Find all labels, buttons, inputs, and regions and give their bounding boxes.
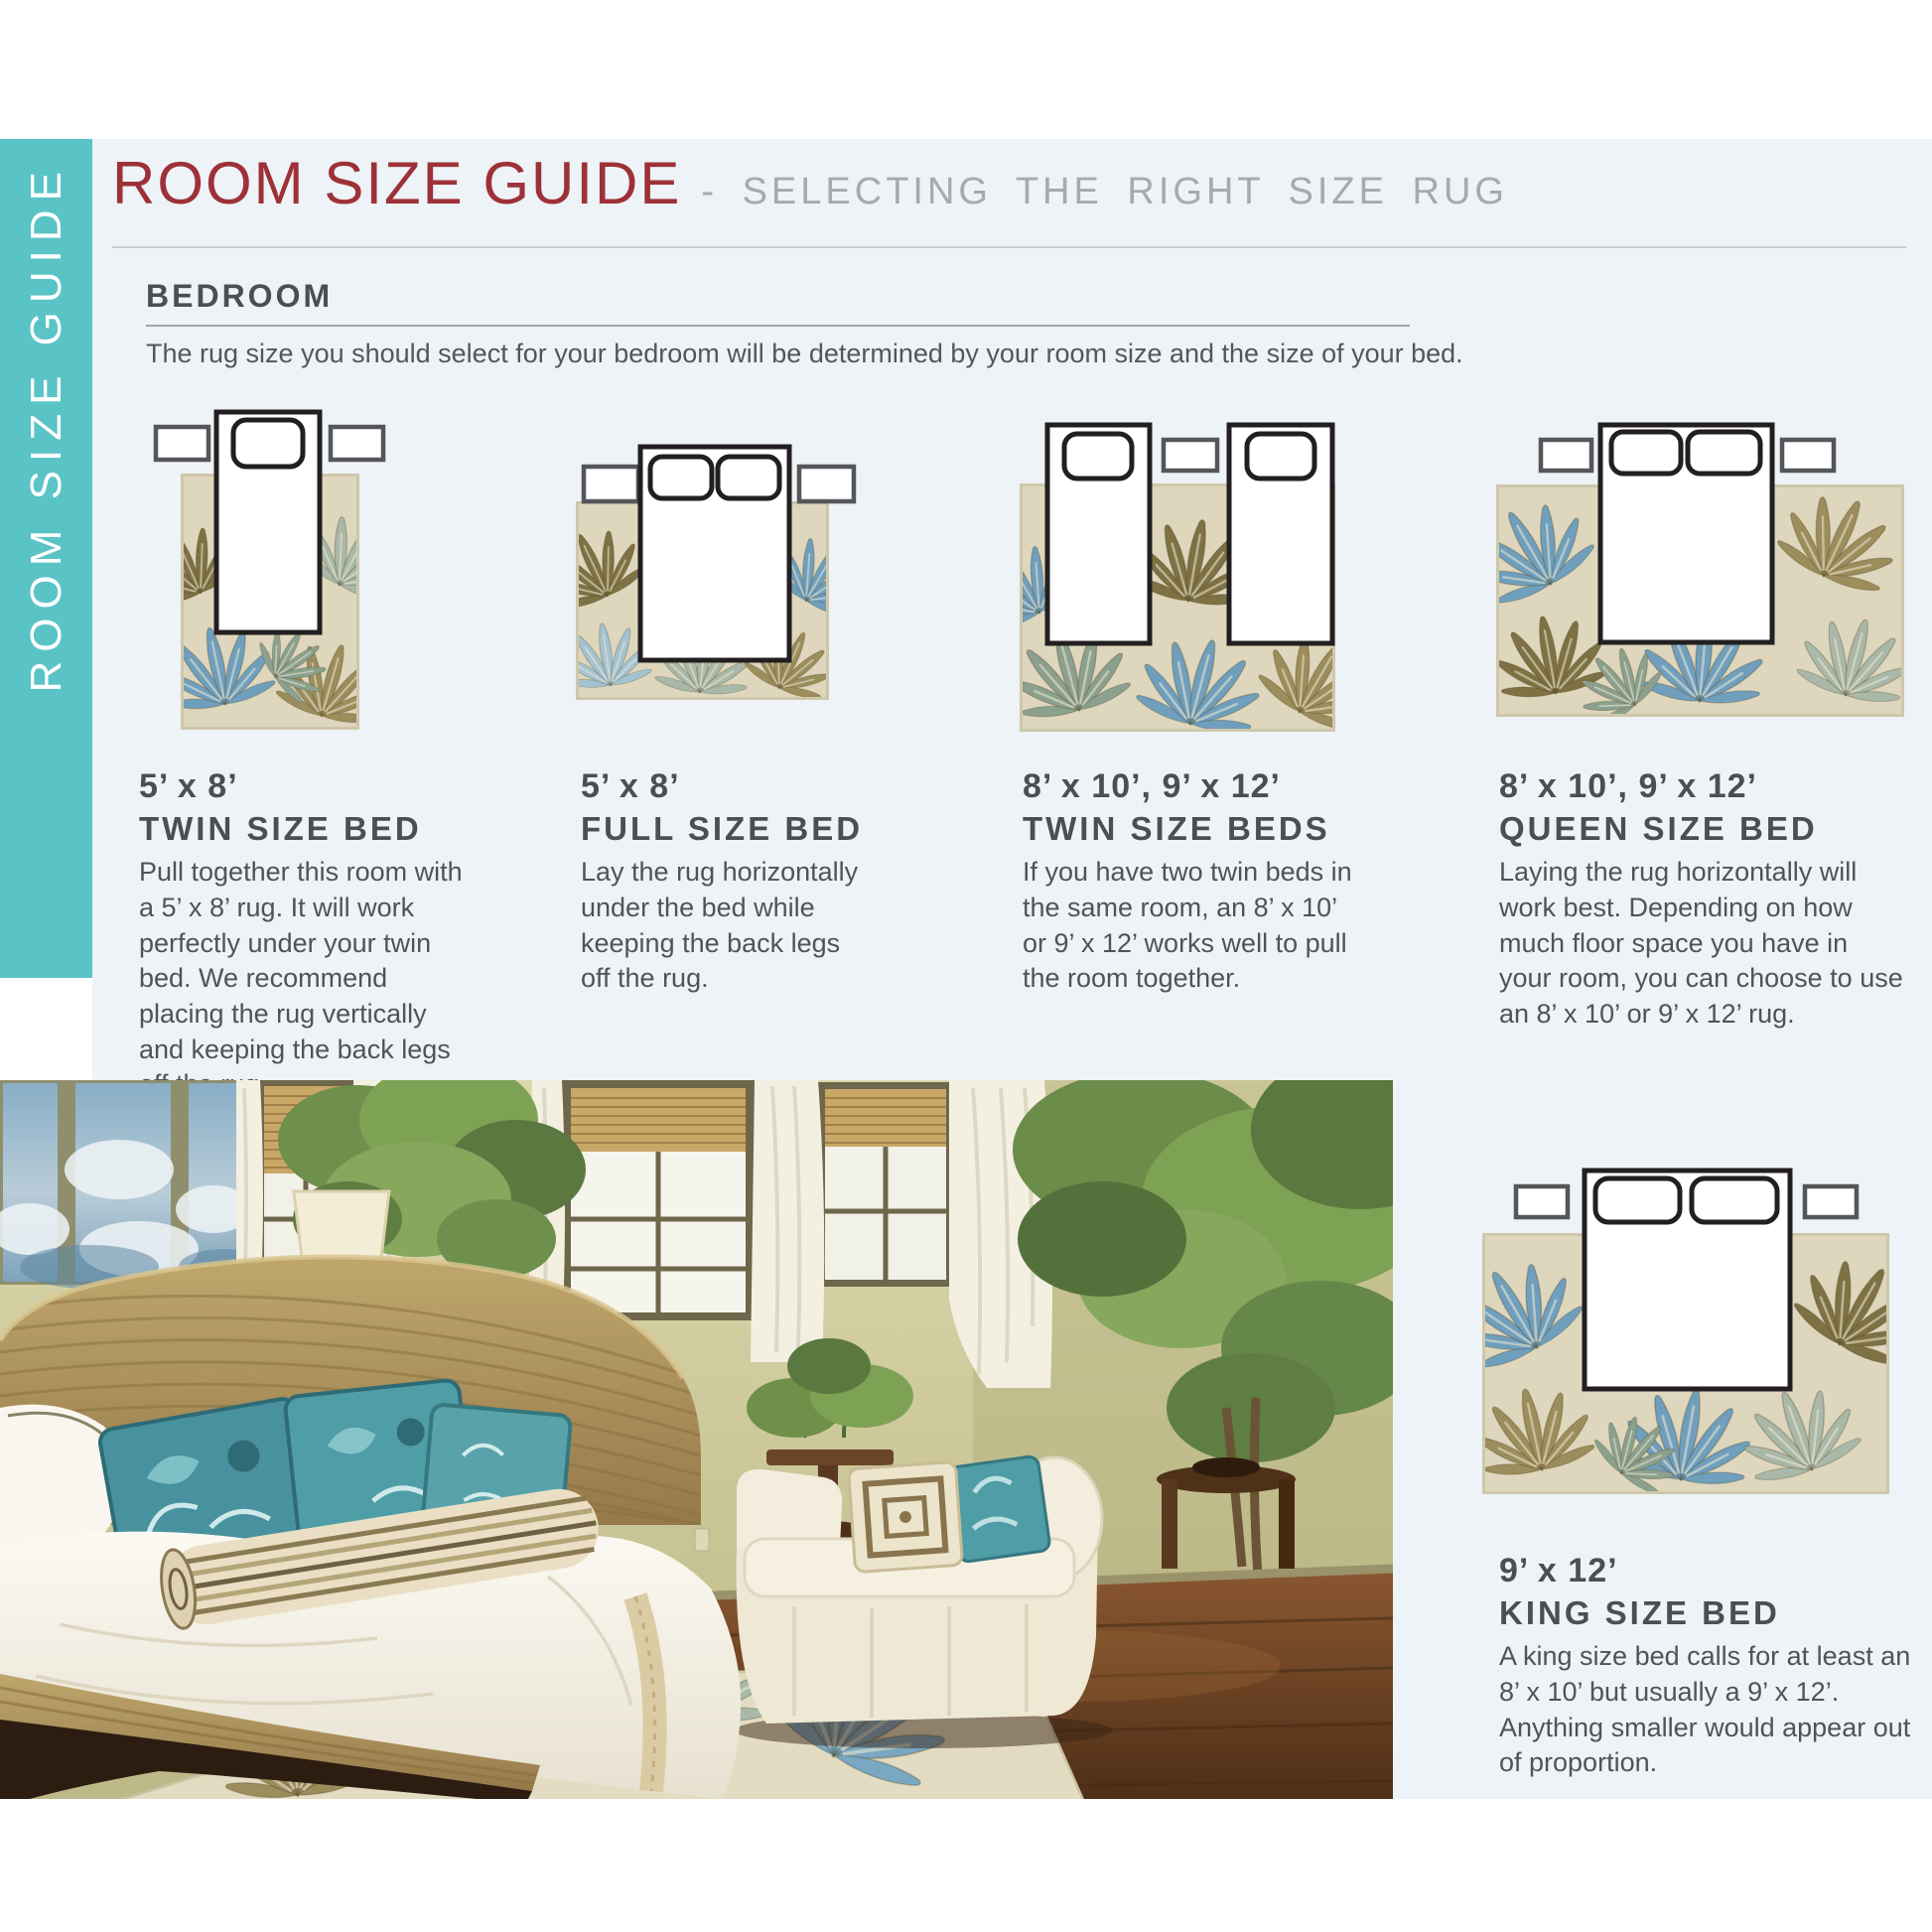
bed-type-heading: TWIN SIZE BED	[139, 809, 477, 849]
nightstand	[1516, 1186, 1568, 1217]
nightstand	[799, 467, 854, 501]
guide-description: Pull together this room with a 5’ x 8’ r…	[139, 855, 477, 1102]
window-center	[561, 1080, 756, 1320]
wall-art-triptych	[0, 1080, 268, 1289]
room-size-guide-page: ROOM SIZE GUIDE ROOM SIZE GUIDE - SELECT…	[0, 0, 1932, 1932]
page-header: ROOM SIZE GUIDE - SELECTING THE RIGHT SI…	[112, 149, 1508, 217]
guide-description: A king size bed calls for at least an 8’…	[1499, 1639, 1916, 1781]
bed-type-heading: QUEEN SIZE BED	[1499, 809, 1906, 849]
nightstand	[1782, 440, 1834, 471]
diagram-twin-bed	[109, 402, 397, 735]
pillow	[1692, 1178, 1777, 1222]
pillow	[1688, 432, 1760, 474]
chaise-striped-pillow	[849, 1461, 963, 1572]
diagram-full-bed	[571, 437, 859, 705]
chaise-lounge	[737, 1455, 1102, 1724]
pillow	[1247, 434, 1314, 479]
bedroom-photo	[0, 1080, 1393, 1799]
wall-outlet	[695, 1529, 709, 1551]
nightstand	[1541, 440, 1591, 471]
nightstand	[584, 467, 638, 501]
pillow	[1611, 432, 1681, 474]
guide-two-twins: 8’ x 10’, 9’ x 12’ TWIN SIZE BEDS If you…	[1023, 766, 1360, 997]
bed-type-heading: FULL SIZE BED	[581, 809, 864, 849]
window-right	[816, 1082, 955, 1287]
nightstand	[156, 427, 208, 460]
rug-size-heading: 9’ x 12’	[1499, 1551, 1916, 1591]
bed-type-heading: TWIN SIZE BEDS	[1023, 809, 1360, 849]
sidebar-tab: ROOM SIZE GUIDE	[0, 139, 92, 978]
guide-king: 9’ x 12’ KING SIZE BED A king size bed c…	[1499, 1551, 1916, 1781]
title-divider	[112, 246, 1906, 248]
pillow	[718, 457, 779, 498]
section-heading: BEDROOM	[146, 278, 333, 315]
guide-description: If you have two twin beds in the same ro…	[1023, 855, 1360, 997]
rug-size-heading: 8’ x 10’, 9’ x 12’	[1499, 766, 1906, 807]
guide-twin: 5’ x 8’ TWIN SIZE BED Pull together this…	[139, 766, 477, 1103]
pillow	[1595, 1178, 1680, 1222]
guide-queen: 8’ x 10’, 9’ x 12’ QUEEN SIZE BED Laying…	[1499, 766, 1906, 1033]
bed-type-heading: KING SIZE BED	[1499, 1593, 1916, 1633]
page-title: ROOM SIZE GUIDE	[112, 149, 681, 217]
page-subtitle: - SELECTING THE RIGHT SIZE RUG	[701, 171, 1508, 213]
rug-size-heading: 5’ x 8’	[581, 766, 864, 807]
pillow	[650, 457, 712, 498]
guide-description: Lay the rug horizontally under the bed w…	[581, 855, 864, 997]
sidebar-label: ROOM SIZE GUIDE	[22, 163, 71, 692]
nightstand	[1164, 440, 1217, 471]
pillow	[233, 420, 303, 467]
guide-full: 5’ x 8’ FULL SIZE BED Lay the rug horizo…	[581, 766, 864, 997]
section-divider	[146, 325, 1410, 327]
nightstand	[331, 427, 383, 460]
pillow	[1064, 434, 1132, 479]
nightstand	[1805, 1186, 1857, 1217]
diagram-two-twin-beds	[1013, 412, 1340, 735]
rug-size-heading: 5’ x 8’	[139, 766, 477, 807]
section-intro: The rug size you should select for your …	[146, 339, 1463, 369]
guide-description: Laying the rug horizontally will work be…	[1499, 855, 1906, 1032]
rug-size-heading: 8’ x 10’, 9’ x 12’	[1023, 766, 1360, 807]
diagram-king-bed	[1474, 1162, 1901, 1499]
diagram-queen-bed	[1489, 417, 1906, 720]
